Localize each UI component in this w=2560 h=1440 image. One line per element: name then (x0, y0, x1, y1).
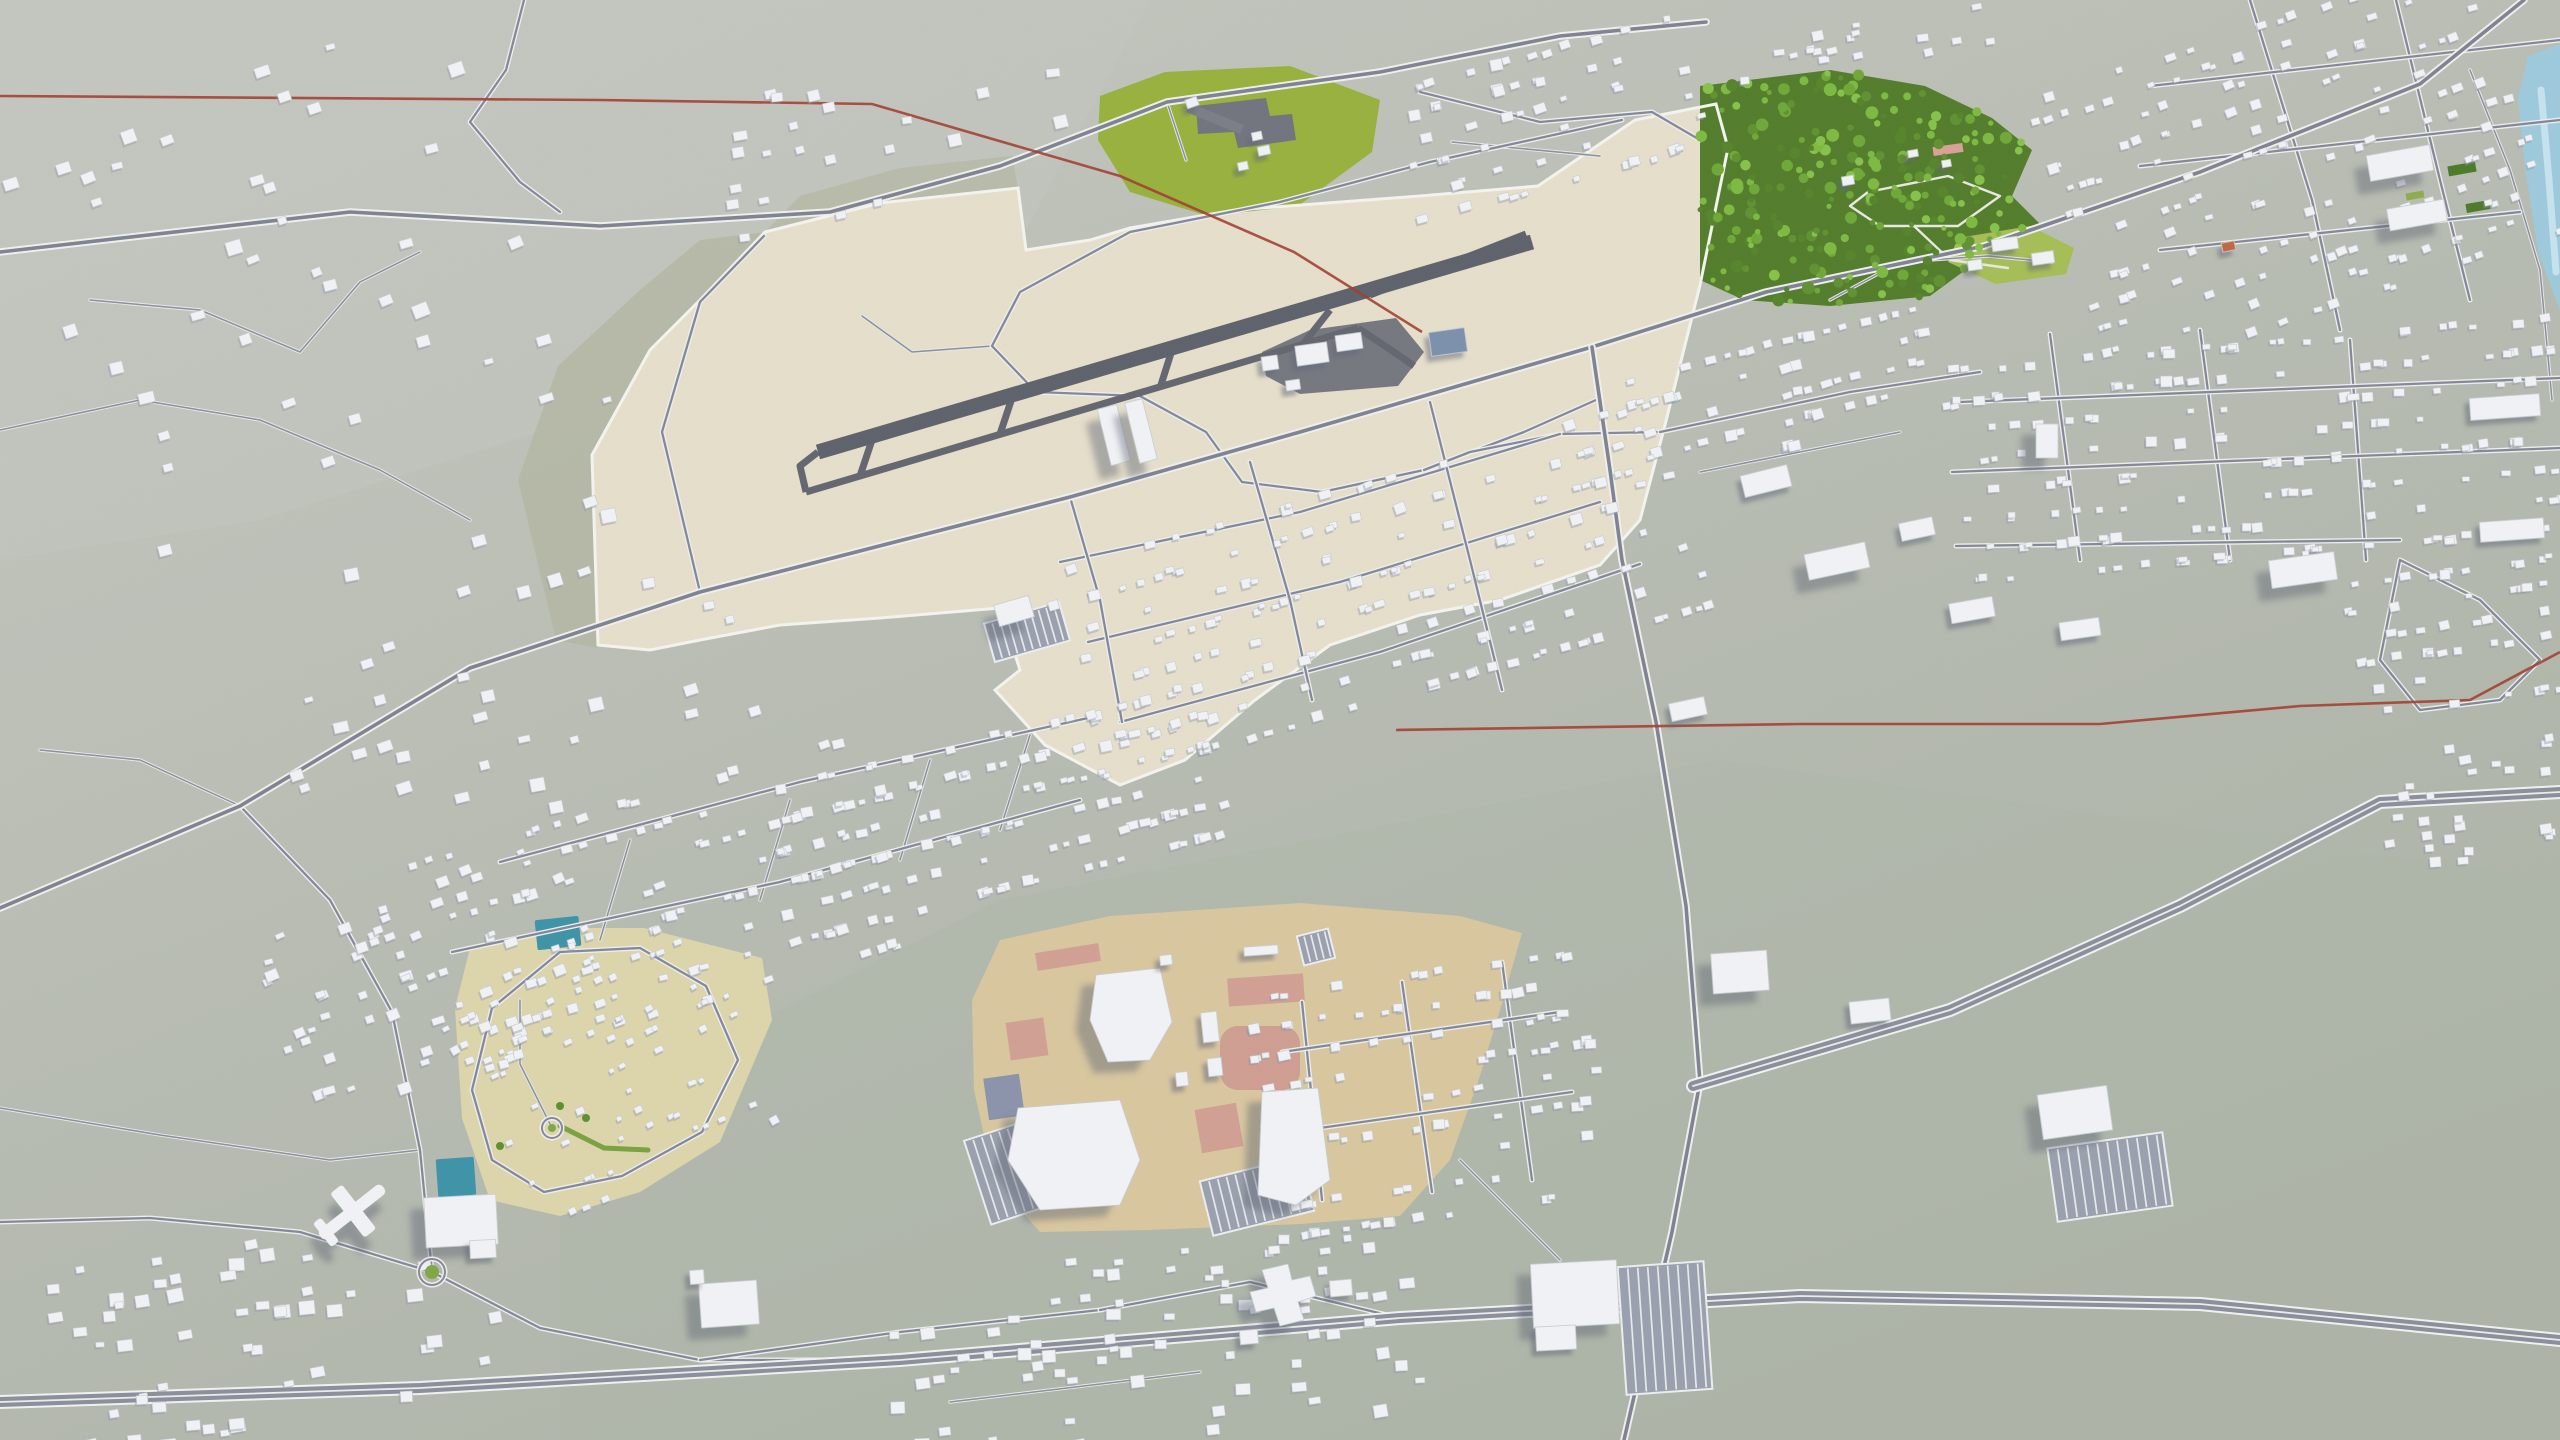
map-viewport[interactable] (0, 0, 2560, 1440)
city-3d-render (0, 0, 2560, 1440)
terrain-grain-overlay (0, 0, 2560, 1440)
